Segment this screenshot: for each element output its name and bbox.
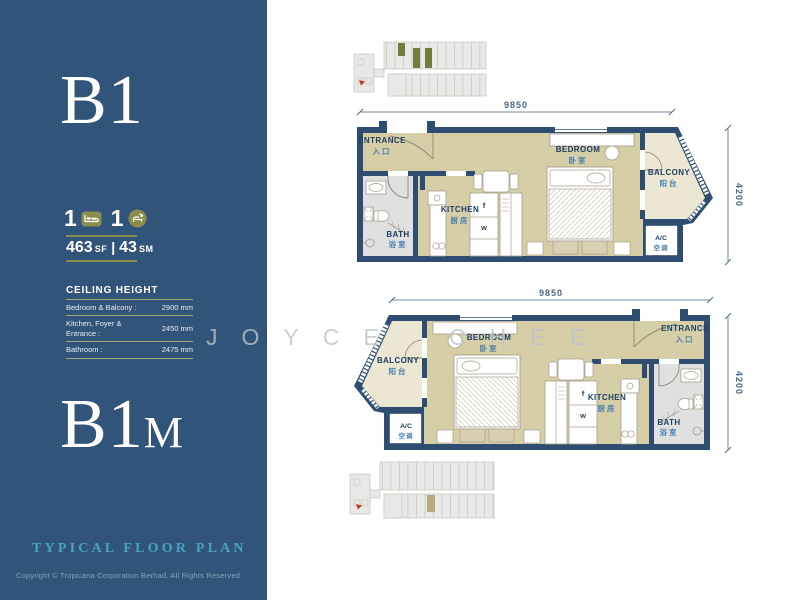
b1m-dimensions: 9850 4200 — [389, 288, 744, 453]
unit-name-b1m: B1M — [60, 390, 184, 460]
b1m-depth-dimension: 4200 — [734, 371, 744, 395]
ac-label-zh: 空调 — [654, 243, 669, 252]
table-row: Bathroom : 2475 mm — [66, 341, 193, 358]
key-plan-building — [350, 462, 494, 518]
area-sf-value: 463 — [66, 239, 93, 257]
row-label: Bathroom : — [66, 345, 144, 355]
bath-icon — [128, 209, 147, 228]
ac-label-zh: 空调 — [399, 431, 414, 440]
fridge-label: f — [582, 389, 585, 398]
fridge-label: f — [483, 201, 486, 210]
divider-rule-bottom — [66, 260, 137, 262]
b1-room-labels: ENTRANCE 入口 BEDROOM 卧室 BALCONY 阳台 KITCHE… — [358, 136, 690, 252]
washer-label: w — [480, 223, 487, 232]
north-arrow-icon — [356, 504, 362, 510]
bath-label: BATH — [386, 230, 409, 239]
ac-label: A/C — [400, 423, 412, 430]
floor-plan-b1m: 9850 4200 ENTRANCE 入口 BEDROOM 卧室 BALCONY… — [350, 283, 750, 475]
row-value: 2475 mm — [162, 345, 193, 354]
bedroom-label-zh: 卧室 — [569, 155, 588, 165]
key-plan-top — [352, 36, 492, 100]
bathroom-count: 1 — [111, 207, 124, 230]
entrance-label: ENTRANCE — [358, 136, 406, 145]
area-separator: | — [111, 239, 115, 255]
bed-icon — [81, 211, 102, 227]
area-sm-value: 43 — [119, 239, 137, 257]
balcony-label: BALCONY — [377, 356, 420, 365]
bedroom-count: 1 — [64, 207, 77, 230]
b1m-width-dimension: 9850 — [539, 288, 563, 298]
ceiling-height-table: Bedroom & Balcony : 2900 mm Kitchen, Foy… — [66, 299, 193, 359]
table-row: Bedroom & Balcony : 2900 mm — [66, 299, 193, 315]
entrance-label: ENTRANCE — [661, 324, 709, 333]
bedroom-label: BEDROOM — [556, 145, 601, 154]
kitchen-label: KITCHEN — [588, 393, 626, 402]
copyright-text: Copyright © Tropicana Corporation Berhad… — [16, 571, 240, 580]
b1-width-dimension: 9850 — [504, 100, 528, 110]
divider-rule-top — [66, 235, 137, 237]
kitchen-label-zh: 厨房 — [451, 215, 470, 225]
ceiling-height-title: CEILING HEIGHT — [66, 285, 158, 296]
kitchen-label: KITCHEN — [441, 205, 479, 214]
key-plan-building — [354, 42, 486, 96]
unit-area: 463 SF | 43 SM — [66, 239, 153, 257]
balcony-label-zh: 阳台 — [660, 178, 679, 188]
balcony-label: BALCONY — [648, 168, 691, 177]
unit-name-b1: B1 — [60, 66, 144, 136]
row-label: Bedroom & Balcony : — [66, 303, 144, 313]
table-row: Kitchen, Foyer & Entrance : 2450 mm — [66, 315, 193, 341]
unit-name-b1m-suffix: M — [144, 408, 184, 457]
bath-label-zh: 浴室 — [389, 239, 408, 249]
bath-label-zh: 浴室 — [660, 427, 679, 437]
floor-plan-b1: 9850 4200 ENTRANCE 入口 BEDROOM 卧室 BALCONY… — [350, 95, 750, 287]
bath-label: BATH — [657, 418, 680, 427]
area-sf-unit: SF — [95, 244, 108, 254]
entrance-label-zh: 入口 — [675, 335, 695, 344]
row-value: 2450 mm — [162, 324, 193, 333]
row-value: 2900 mm — [162, 303, 193, 312]
washer-label: w — [579, 411, 586, 420]
kitchen-label-zh: 厨房 — [598, 403, 617, 413]
north-arrow-icon — [359, 80, 365, 86]
key-plan-bottom — [348, 458, 498, 528]
unit-name-b1m-main: B1 — [60, 386, 144, 463]
row-label: Kitchen, Foyer & Entrance : — [66, 319, 144, 339]
sidebar: B1 1 1 463 SF | 43 — [0, 0, 267, 600]
area-sm-unit: SM — [139, 244, 154, 254]
balcony-label-zh: 阳台 — [389, 366, 408, 376]
ac-label: A/C — [655, 235, 667, 242]
key-plan-highlighted-unit — [427, 495, 435, 512]
unit-stats: 1 1 — [64, 207, 153, 230]
entrance-label-zh: 入口 — [372, 147, 392, 156]
key-plan-highlighted-units — [398, 43, 432, 68]
watermark-text: JOYCE CHEE — [206, 324, 609, 351]
b1-dimensions: 9850 4200 — [357, 100, 744, 265]
b1-depth-dimension: 4200 — [734, 183, 744, 207]
page-title: TYPICAL FLOOR PLAN — [32, 541, 247, 557]
